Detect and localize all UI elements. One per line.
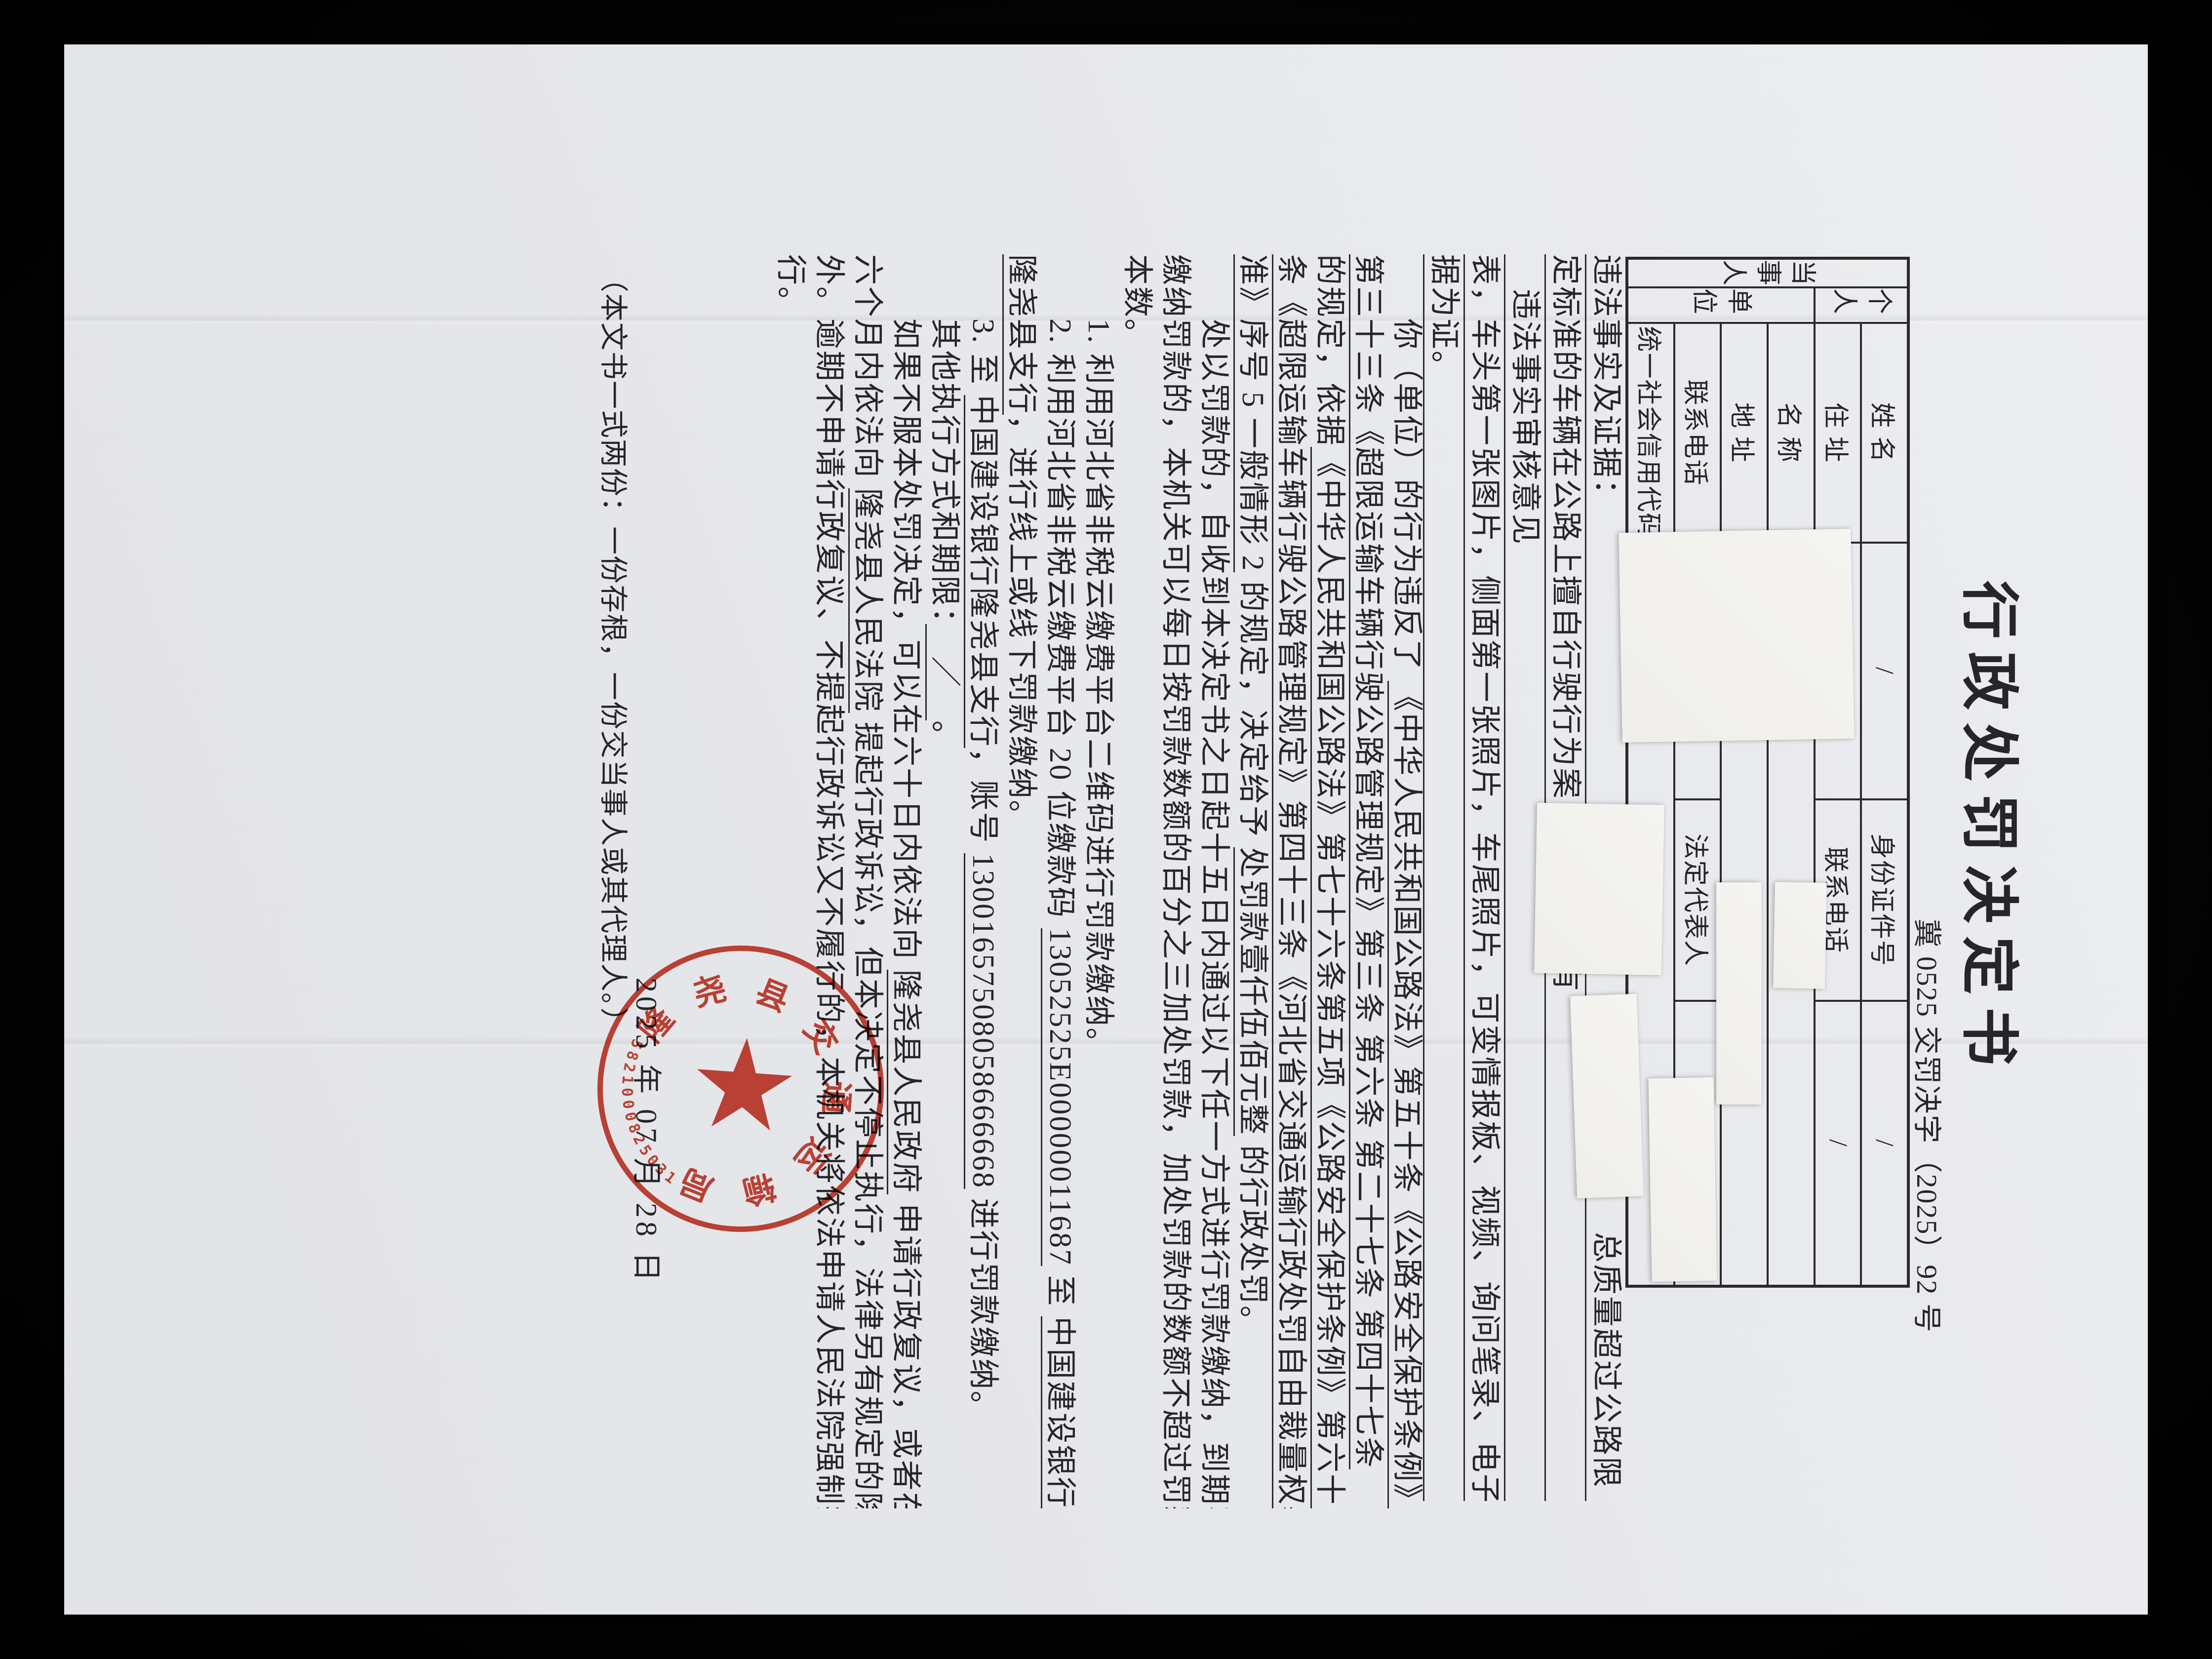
seal-org-char: 通 [814,1079,864,1117]
redaction-slip [1619,529,1854,743]
penalty-decision-document: 行政处罚决定书 冀 0525 交罚决字（2025）92 号 当事人 个人 单位 … [64,44,2148,1615]
body-line: 六个月内依法向 隆尧县人民法院 提起行政诉讼，但本决定不停止执行，法律另有规定的… [848,254,887,1508]
body-line: 第三十三条《超限运输车辆行驶公路管理规定》第三条 第六条 第二十七条 第四十七条 [1349,254,1387,1508]
field-label-phone-unit: 联系电话 [1674,323,1721,543]
redaction-slip [1648,1077,1717,1282]
document-title: 行政处罚决定书 [1952,44,2037,1615]
body-line: 1. 利用河北省非税云缴费平台二维码进行罚款缴纳。 [1079,254,1118,1508]
body-line: 如果不服本处罚决定，可以在六十日内依法向 隆尧县人民政府 申请行政复议，或者在 [887,254,925,1508]
decision-body-text: 你（单位）的行为违反了 《中华人民共和国公路法》第五十条《公路安全保护条例》第三… [771,254,1426,1508]
copies-footnote: （本文书一式两份：一份存根，一份交当事人或其代理人。） [595,264,636,1037]
body-line: 处以罚款的，自收到本决定书之日起十五日内通过以下任一方式进行罚款缴纳，到期不 [1195,254,1233,1508]
facts-line: 表，车头第一张图片，侧面第一张照片，车尾照片，可变情报板、视频、询问笔录、电子数 [1463,254,1504,1501]
body-line: 的规定，依据《中华人民共和国公路法》第七十六条第五项《公路安全保护条例》第六十四 [1310,254,1349,1508]
redaction-slip [1716,882,1762,1105]
body-line: 外。逾期不申请行政复议、不提起行政诉讼又不履行的，本机关将依法申请人民法院强制执 [810,254,848,1508]
field-label-name: 姓 名 [1861,323,1908,543]
redaction-slip [1773,882,1827,989]
unit-label-cell: 单位 [1627,287,1815,323]
body-line: 隆尧县支行，进行线上或线下罚款缴纳。 [1002,254,1041,1508]
field-label-unit-name: 名 称 [1768,323,1815,543]
field-value-name: / [1861,543,1908,799]
redaction-slip [1570,994,1644,1198]
field-label-unit-address: 地 址 [1721,323,1768,543]
field-label-id-number: 身份证件号 [1861,799,1908,1001]
photo-scene: 行政处罚决定书 冀 0525 交罚决字（2025）92 号 当事人 个人 单位 … [0,0,2212,1659]
body-line: 准》序号 5 一般情形 2 的规定，决定给予 处罚款壹仟伍佰元整 的行政处罚。 [1233,254,1272,1508]
body-line: 行。 [771,254,810,1508]
field-label-credit-code: 统一社会信用代码 [1627,323,1674,543]
person-label-cell: 个人 [1815,287,1908,323]
body-line: 本数。 [1118,254,1156,1508]
redaction-slip [1534,803,1664,975]
seal-code-digit: 0 [618,1085,636,1099]
field-value-phone-person: / [1815,1001,1861,1286]
body-line: 其他执行方式和期限： ／ 。 [925,254,964,1508]
body-line: 缴纳罚款的，本机关可以每日按罚款数额的百分之三加处罚款，加处罚款的数额不超过罚款 [1156,254,1195,1508]
body-line: 2. 利用河北省非税云缴费平台 20 位缴款码 13052525E0000001… [1041,254,1079,1508]
facts-line: 据为证。 [1423,254,1463,1501]
seal-code-digit: 0 [619,1097,637,1112]
body-line: 3. 至 中国建设银行隆尧县支行，账号 13001657508058666668… [964,254,1002,1508]
field-value-id-number: / [1861,1001,1908,1286]
party-label-cell: 当事人 [1627,259,1908,287]
document-number: 冀 0525 交罚决字（2025）92 号 [1909,918,1950,1333]
body-line: 你（单位）的行为违反了 《中华人民共和国公路法》第五十条《公路安全保护条例》 [1387,254,1426,1508]
field-label-address: 住 址 [1815,323,1861,543]
body-line: 条《超限运输车辆行驶公路管理规定》第四十三条《河北省交通运输行政处罚自由裁量权基 [1272,254,1310,1508]
field-label-legal-representative: 法定代表人 [1674,799,1721,1001]
